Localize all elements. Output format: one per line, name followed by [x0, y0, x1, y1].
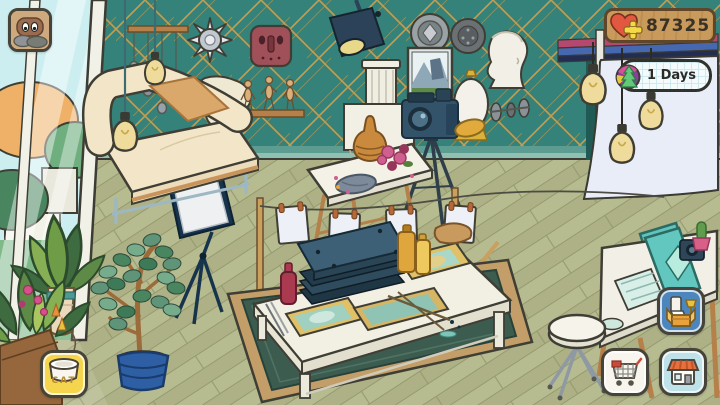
storefront-icon: [664, 353, 702, 391]
days-badge[interactable]: 1 Days: [618, 59, 712, 92]
red-tribal-mask: [251, 26, 291, 66]
rainbow-tree-icon: [613, 61, 645, 93]
cat-food-label: CAT: [43, 376, 85, 386]
plaster-bust: [488, 31, 528, 88]
sun-mask: [188, 18, 232, 62]
days-label: 1 Days: [647, 68, 696, 83]
inventory-button[interactable]: [657, 287, 705, 335]
hearts-value: 87325: [646, 16, 710, 36]
cat-food-button[interactable]: CAT: [40, 350, 88, 398]
hearts-counter[interactable]: 87325: [604, 8, 716, 43]
cloth: [435, 223, 472, 243]
shop-button[interactable]: [659, 348, 707, 396]
room-scene: [0, 0, 720, 405]
heart-plus-icon: [609, 11, 645, 41]
hamster-face-icon: [11, 11, 49, 49]
furniture-box-icon: [662, 292, 700, 330]
menu-button[interactable]: [8, 8, 52, 52]
shopping-cart-icon: [606, 353, 644, 391]
game-screen: 87325 1 Days CAT: [0, 0, 720, 405]
cart-button[interactable]: [601, 348, 649, 396]
